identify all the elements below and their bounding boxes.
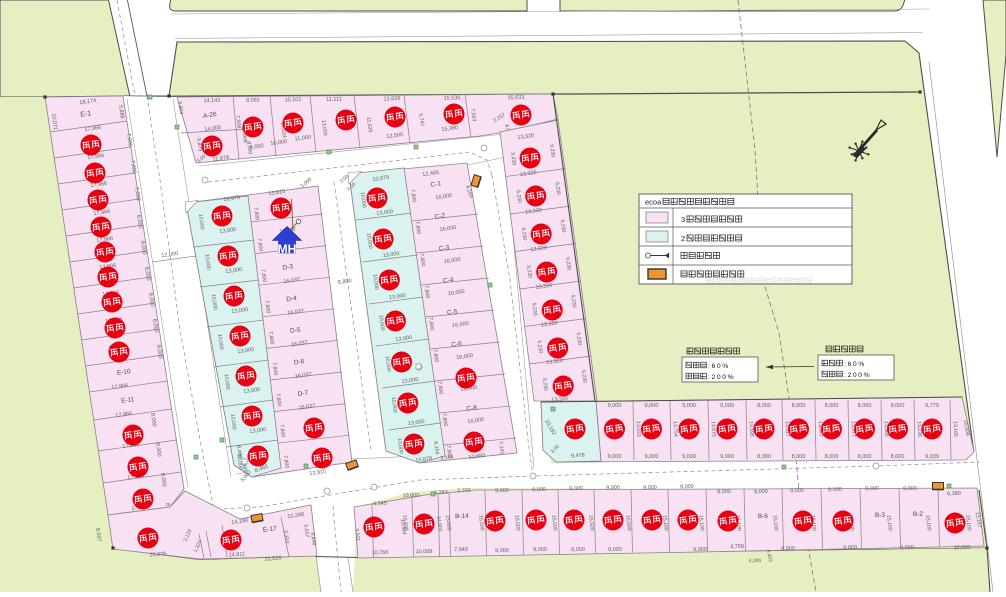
svg-text:D-5: D-5: [290, 326, 302, 334]
svg-text:9,000: 9,000: [720, 454, 734, 460]
svg-text:C-3: C-3: [438, 244, 450, 252]
svg-text:10,089: 10,089: [416, 549, 433, 555]
svg-text:E-17: E-17: [263, 525, 278, 533]
svg-text:D-7: D-7: [297, 390, 309, 398]
svg-text:2: 2: [681, 234, 685, 243]
svg-text:8,000: 8,000: [891, 454, 905, 460]
svg-text:9,000: 9,000: [720, 403, 734, 409]
svg-text:9,000: 9,000: [865, 486, 879, 492]
svg-text:13,165: 13,165: [952, 421, 959, 437]
svg-text:10,101: 10,101: [284, 97, 301, 104]
svg-text:12,626: 12,626: [383, 96, 400, 103]
svg-text:9,000: 9,000: [495, 548, 509, 554]
svg-text:MH: MH: [278, 242, 297, 256]
svg-text:9,000: 9,000: [790, 488, 804, 494]
svg-text:9,000: 9,000: [645, 454, 659, 460]
svg-text:9,000: 9,000: [533, 547, 547, 553]
svg-text:9,091: 9,091: [246, 97, 260, 103]
svg-text:B-2: B-2: [913, 511, 924, 518]
svg-text:8,000: 8,000: [858, 454, 872, 460]
svg-text:ecoa: ecoa: [645, 198, 662, 207]
svg-text:9,000: 9,000: [608, 454, 622, 460]
svg-text:7,949: 7,949: [454, 547, 468, 553]
svg-text:9,000: 9,000: [532, 487, 546, 493]
svg-text:C-1: C-1: [430, 180, 442, 188]
svg-text:C-8: C-8: [466, 404, 478, 412]
svg-text:4,758: 4,758: [730, 544, 744, 550]
svg-text:20,676: 20,676: [149, 551, 166, 558]
svg-text:9,000: 9,000: [781, 546, 795, 552]
svg-text:D-3: D-3: [282, 263, 294, 271]
svg-text:13,675: 13,675: [710, 421, 717, 437]
svg-text:B-3: B-3: [875, 512, 886, 519]
svg-text:10,000: 10,000: [954, 545, 971, 551]
svg-text::200%: :200%: [844, 372, 871, 379]
svg-text:6,380: 6,380: [947, 491, 961, 497]
svg-text::60%: :60%: [844, 361, 866, 368]
svg-text:12,526: 12,526: [264, 555, 281, 562]
svg-text:3: 3: [681, 215, 685, 224]
svg-text:9,000: 9,000: [569, 486, 583, 492]
svg-text:9,000: 9,000: [843, 545, 857, 551]
svg-text:9,000: 9,000: [495, 488, 509, 494]
svg-text:9,000: 9,000: [903, 486, 917, 492]
svg-text:4,286: 4,286: [749, 558, 762, 564]
svg-text:D-6: D-6: [294, 358, 306, 366]
svg-text:8,000: 8,000: [825, 454, 839, 460]
svg-text:13,236: 13,236: [916, 421, 923, 437]
svg-text:15,633: 15,633: [507, 95, 524, 102]
svg-text:2,701: 2,701: [457, 488, 471, 494]
svg-text:9,000: 9,000: [682, 454, 696, 460]
svg-text:13,933: 13,933: [635, 421, 642, 437]
svg-text:9,039: 9,039: [925, 454, 939, 460]
svg-text:9,000: 9,000: [608, 547, 622, 553]
svg-text:9,000: 9,000: [680, 484, 694, 490]
svg-text:9,000: 9,000: [608, 403, 622, 409]
svg-text:13,595: 13,595: [748, 421, 755, 437]
svg-text:C-5: C-5: [447, 308, 459, 316]
svg-text:C-6: C-6: [451, 340, 463, 348]
svg-text:9,000: 9,000: [643, 485, 657, 491]
svg-text:13,754: 13,754: [672, 421, 679, 437]
svg-text:9,000: 9,000: [717, 489, 731, 495]
svg-text:8,000: 8,000: [792, 403, 806, 409]
svg-text:9,000: 9,000: [606, 485, 620, 491]
svg-text:C-2: C-2: [434, 212, 446, 220]
svg-text:8,000: 8,000: [757, 403, 771, 409]
svg-text::200%: :200%: [708, 374, 735, 381]
svg-text:14,142: 14,142: [203, 98, 220, 105]
svg-text:8,000: 8,000: [891, 403, 905, 409]
svg-text:15,536: 15,536: [443, 95, 460, 102]
svg-text:14,911: 14,911: [229, 551, 246, 558]
svg-text:9,000: 9,000: [828, 487, 842, 493]
svg-text:9,000: 9,000: [571, 547, 585, 553]
svg-text:B-6: B-6: [758, 513, 769, 520]
svg-text:10,766: 10,766: [372, 550, 389, 556]
svg-text:10,000: 10,000: [402, 493, 419, 500]
svg-text:8,000: 8,000: [757, 454, 771, 460]
svg-text:9,000: 9,000: [645, 403, 659, 409]
svg-text:8,000: 8,000: [825, 403, 839, 409]
svg-text:6,263: 6,263: [434, 490, 448, 496]
svg-text:8,000: 8,000: [858, 403, 872, 409]
svg-text:9,000: 9,000: [693, 547, 707, 553]
svg-text:4,545: 4,545: [373, 501, 387, 507]
svg-text:8,000: 8,000: [792, 454, 806, 460]
svg-text:9,000: 9,000: [754, 489, 768, 495]
svg-text:C-4: C-4: [443, 276, 455, 284]
svg-text:9,478: 9,478: [571, 453, 585, 460]
svg-text::60%: :60%: [708, 363, 730, 370]
svg-text:B-14: B-14: [455, 513, 469, 520]
svg-text:D-4: D-4: [286, 295, 298, 303]
svg-text:11,111: 11,111: [326, 97, 342, 104]
svg-text:9,000: 9,000: [682, 403, 696, 409]
svg-text:9,779: 9,779: [925, 403, 939, 409]
svg-text:9,000: 9,000: [900, 545, 914, 551]
